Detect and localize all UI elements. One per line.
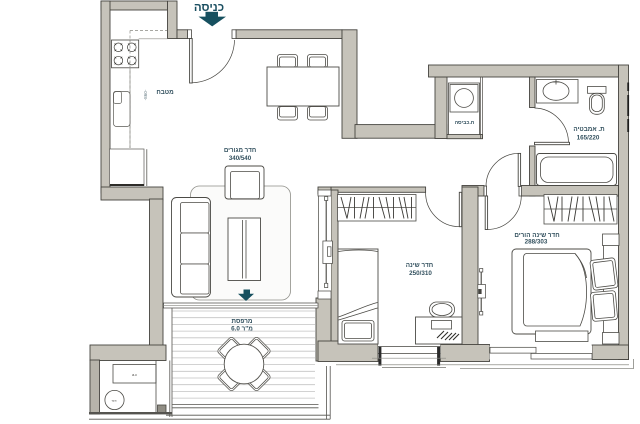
svg-text:340/540: 340/540 <box>229 155 252 162</box>
svg-text:288/303: 288/303 <box>525 239 548 246</box>
svg-text:דוד: דוד <box>112 399 117 403</box>
svg-text:חדר מגורים: חדר מגורים <box>224 147 256 154</box>
svg-text:250/310: 250/310 <box>409 270 432 277</box>
svg-text:חדר שינה: חדר שינה <box>406 262 433 269</box>
svg-text:מטבח: מטבח <box>156 89 174 96</box>
svg-text:a.c: a.c <box>132 373 137 377</box>
svg-text:ח.כביסה: ח.כביסה <box>455 120 475 126</box>
svg-text:מרפסת: מרפסת <box>232 318 253 325</box>
svg-text:מ"ר 6.0: מ"ר 6.0 <box>231 325 253 332</box>
svg-text:165/220: 165/220 <box>577 135 600 142</box>
svg-text:-860-: -860- <box>143 89 148 100</box>
svg-text:ת. אמבטיה: ת. אמבטיה <box>573 126 605 133</box>
